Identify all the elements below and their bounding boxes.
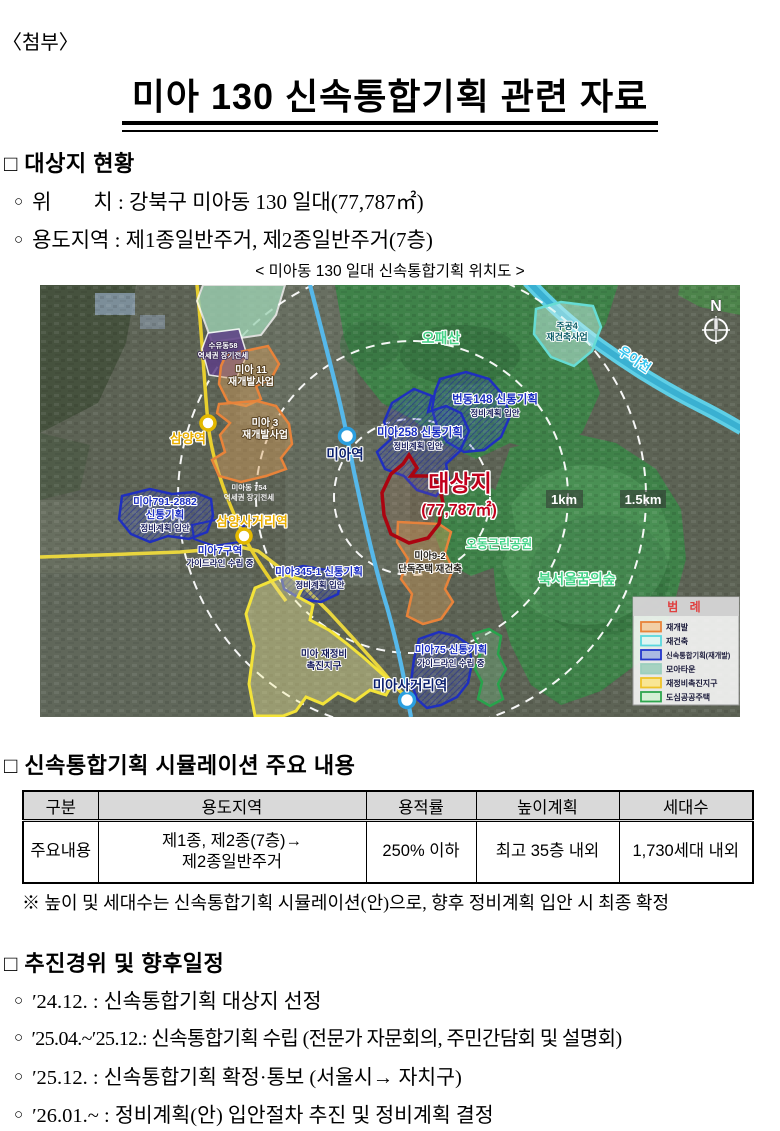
label-mia7: 미아7구역 (198, 544, 242, 557)
schedule-item-1: ○′24.12. : 신속통합기획 대상지 선정 (14, 984, 321, 1014)
attachment-label: 〈첨부〉 (2, 26, 79, 55)
label-station-mia: 미아역 (326, 446, 363, 462)
bullet-icon: ○ (14, 1069, 23, 1085)
schedule-item-4: ○′26.01.~ : 정비계획(안) 입안절차 추진 및 정비계획 결정 (14, 1098, 494, 1128)
label-mia3: 미아 3 (252, 416, 279, 429)
map-layers: 1km 1.5km 오패산 오동근린공원 북서울꿈의숲 우이천 수유동58 역세… (40, 285, 740, 717)
label-target-site: 대상지 (428, 470, 491, 496)
compass-needle (714, 318, 718, 330)
station-samyang-sageori-marker (237, 529, 251, 543)
label-mia75-sub: 가이드라인 수립 중 (417, 658, 484, 668)
legend-item: 신속통합기획(재개발) (641, 650, 731, 660)
station-mia-sageori-marker (400, 693, 415, 708)
table-row: 주요내용 제1종, 제2종(7층)→ 제2종일반주거 250% 이하 최고 35… (23, 821, 753, 884)
bullet-icon: ○ (14, 1107, 23, 1123)
label-station-mia-sageori: 미아사거리역 (373, 677, 448, 693)
label-opaesan: 오패산 (422, 330, 461, 346)
page-title: 미아 130 신속통합기획 관련 자료 (122, 68, 659, 132)
legend-swatch-redev (641, 622, 661, 632)
station-mia-marker (340, 429, 355, 444)
cell-height: 최고 35층 내외 (476, 821, 619, 884)
legend-label: 재정비촉진지구 (666, 678, 718, 688)
schedule-text-4: ′26.01.~ : 정비계획(안) 입안절차 추진 및 정비계획 결정 (32, 1105, 494, 1127)
label-promotion-sub: 촉진지구 (307, 660, 342, 672)
label-mia258: 미아258 신통기획 (377, 425, 463, 439)
label-jugong4: 주공4 (556, 321, 578, 331)
map-legend: 범 례 재개발 재건축 신속통합기획(재개발) 모아타운 (633, 597, 739, 705)
section-heading-simulation: □ 신속통합기획 시뮬레이션 주요 내용 (4, 748, 355, 780)
label-station-samyang-sageori: 삼양사거리역 (216, 514, 288, 529)
legend-label: 재개발 (666, 622, 689, 632)
col-header-far: 용적률 (366, 791, 476, 821)
col-header-usage: 용도지역 (98, 791, 366, 821)
cell-far: 250% 이하 (366, 821, 476, 884)
label-mia92-sub: 단독주택 재건축 (398, 563, 462, 575)
legend-title: 범 례 (667, 599, 704, 614)
page-title-wrap: 미아 130 신속통합기획 관련 자료 (0, 68, 780, 132)
map-caption: < 미아동 130 일대 신속통합기획 위치도 > (0, 259, 780, 281)
label-mia75: 미아75 신통기획 (415, 643, 488, 656)
site-location-text: 위 치 : 강북구 미아동 130 일대(77,787㎡) (32, 190, 424, 214)
cell-households: 1,730세대 내외 (619, 821, 753, 884)
schedule-text-1: ′24.12. : 신속통합기획 대상지 선정 (32, 991, 321, 1013)
zone-mia3 (212, 401, 292, 482)
simulation-table: 구분 용도지역 용적률 높이계획 세대수 주요내용 제1종, 제2종(7층)→ … (22, 790, 754, 884)
label-beondong148: 번동148 신통기획 (452, 392, 538, 406)
label-mia7-sub: 가이드라인 수립 중 (186, 558, 253, 568)
label-mia754-sub: 역세권 장기전세 (224, 492, 274, 502)
label-mia92: 미아9-2 (414, 550, 445, 562)
legend-label: 모아타운 (666, 664, 696, 674)
legend-swatch-public-housing (641, 692, 661, 702)
bullet-icon: ○ (14, 993, 23, 1009)
location-map: 1km 1.5km 오패산 오동근린공원 북서울꿈의숲 우이천 수유동58 역세… (40, 285, 740, 717)
label-mia791-sub: 신통기획 (146, 508, 185, 521)
label-mia754: 미아동 754 (231, 482, 267, 492)
cell-usage-line2: 제2종일반주거 (99, 852, 366, 873)
legend-swatch-rebuild (641, 636, 661, 646)
legend-label: 도심공공주택 (666, 692, 710, 702)
compass-n-label: N (710, 298, 722, 315)
label-mia3-sub: 재개발사업 (242, 428, 288, 441)
cell-usage: 제1종, 제2종(7층)→ 제2종일반주거 (98, 821, 366, 884)
label-odong-park: 오동근린공원 (466, 536, 532, 551)
site-zoning-line: ○용도지역 : 제1종일반주거, 제2종일반주거(7층) (14, 224, 433, 254)
label-suyu58: 수유동58 (208, 341, 237, 350)
ring-1p5km-label: 1.5km (625, 492, 662, 507)
col-header-households: 세대수 (619, 791, 753, 821)
label-mia11-sub: 재개발사업 (228, 375, 274, 388)
simulation-note: ※ 높이 및 세대수는 신속통합기획 시뮬레이션(안)으로, 향후 정비계획 입… (22, 889, 669, 915)
label-kkumeuisup: 북서울꿈의숲 (538, 571, 615, 587)
bullet-icon: ○ (14, 1030, 22, 1046)
label-promotion: 미아 재정비 (301, 648, 347, 660)
station-samyang-marker (201, 416, 215, 430)
label-jugong4-sub: 재건축사업 (546, 331, 587, 342)
legend-swatch-promotion (641, 678, 661, 688)
legend-label: 재건축 (666, 636, 689, 646)
site-location-line: ○위 치 : 강북구 미아동 130 일대(77,787㎡) (14, 186, 424, 216)
bullet-icon: ○ (14, 194, 23, 210)
schedule-item-2: ○′25.04.~′25.12.: 신속통합기획 수립 (전문가 자문회의, 주… (14, 1022, 622, 1051)
label-mia258-sub: 정비계획 입안 (393, 441, 442, 451)
site-zoning-text: 용도지역 : 제1종일반주거, 제2종일반주거(7층) (32, 228, 433, 252)
legend-swatch-sintong (641, 650, 661, 660)
bullet-icon: ○ (14, 232, 23, 248)
ring-1km-label: 1km (551, 492, 577, 507)
schedule-text-2: ′25.04.~′25.12.: 신속통합기획 수립 (전문가 자문회의, 주민… (31, 1028, 621, 1050)
legend-item: 도심공공주택 (641, 692, 710, 702)
cell-usage-line1: 제1종, 제2종(7층)→ (99, 831, 366, 852)
section-heading-schedule: □ 추진경위 및 향후일정 (4, 946, 224, 978)
location-map-svg: 1km 1.5km 오패산 오동근린공원 북서울꿈의숲 우이천 수유동58 역세… (40, 285, 740, 717)
section-heading-site: □ 대상지 현황 (4, 146, 135, 178)
legend-swatch-moatown (641, 664, 661, 674)
schedule-text-3: ′25.12. : 신속통합기획 확정·통보 (서울시→ 자치구) (32, 1067, 462, 1089)
label-mia791-sub2: 정비계획 입안 (140, 523, 189, 533)
col-header-gubun: 구분 (23, 791, 98, 821)
document-page: 〈첨부〉 미아 130 신속통합기획 관련 자료 □ 대상지 현황 ○위 치 :… (0, 0, 780, 1131)
legend-item: 재정비촉진지구 (641, 678, 718, 688)
label-mia791: 미아791-2882 (133, 495, 197, 508)
legend-label: 신속통합기획(재개발) (666, 651, 731, 660)
label-station-samyang: 삼양역 (170, 431, 206, 446)
col-header-height: 높이계획 (476, 791, 619, 821)
label-mia11: 미아 11 (235, 363, 267, 376)
cell-row-label: 주요내용 (23, 821, 98, 884)
label-target-area: (77,787㎡) (421, 500, 497, 519)
legend-item: 모아타운 (641, 664, 696, 674)
label-mia345-sub: 정비계획 입안 (295, 580, 344, 590)
label-beondong148-sub: 정비계획 입안 (470, 408, 519, 418)
label-mia345: 미아345-1 신통기획 (275, 565, 363, 578)
table-header-row: 구분 용도지역 용적률 높이계획 세대수 (23, 791, 753, 821)
schedule-item-3: ○′25.12. : 신속통합기획 확정·통보 (서울시→ 자치구) (14, 1060, 462, 1090)
label-suyu58-sub: 역세권 장기전세 (198, 350, 248, 360)
